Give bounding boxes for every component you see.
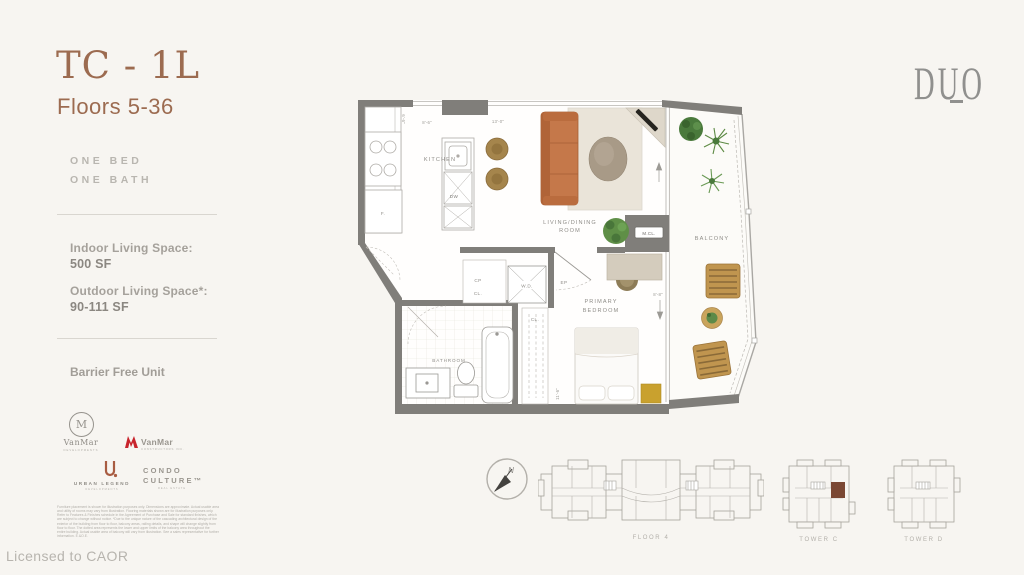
vanmar-constructors-logo-icon (125, 436, 138, 448)
bedroom-label-line1: PRIMARY (584, 299, 617, 305)
unit-floorplan: M.CL. F. DW (350, 92, 770, 432)
kitchen-label: KITCHEN (424, 157, 456, 163)
duo-logo-underline (950, 100, 963, 103)
keyplan-floor4 (538, 450, 764, 530)
unit-code-title: TC - 1L (56, 44, 200, 87)
licensed-to-caor: Licensed to CAOR (6, 548, 128, 564)
bedroom-label-line2: BEDROOM (583, 308, 620, 314)
media-closet-label: M.CL. (642, 231, 655, 236)
coat-pantry-label: CP (474, 278, 481, 283)
dim-kitchen-depth: 6'-6" (401, 114, 406, 124)
living-plant (603, 218, 629, 244)
dim-bedroom-width: 8'-8" (653, 292, 663, 297)
balcony-chair-2 (693, 341, 732, 380)
bath-count: ONE BATH (70, 171, 152, 190)
kitchen-island (442, 138, 474, 230)
balcony-table (702, 308, 723, 329)
bed-count: ONE BED (70, 152, 152, 171)
keyplan-tower-c (781, 458, 857, 530)
dishwasher-label: DW (450, 194, 459, 199)
vanmar-developments-logo-icon: M (69, 412, 94, 437)
bed-bath-block: ONE BED ONE BATH (70, 152, 152, 190)
ottoman (641, 384, 661, 403)
bedroom-closet (522, 308, 548, 404)
unit-floors: Floors 5-36 (57, 94, 174, 120)
keyplan-tower-d (886, 458, 962, 530)
indoor-space-value: 500 SF (70, 257, 112, 271)
floorplan-sheet: TC - 1L Floors 5-36 ONE BED ONE BATH Ind… (0, 0, 1024, 575)
keyplan-tower-c-label: TOWER C (781, 537, 857, 543)
bedroom-closet-label: CL. (531, 317, 539, 322)
dim-living-width: 13'-0" (492, 119, 504, 124)
north-compass: N (484, 456, 530, 502)
dim-kitchen-width: 8'-6" (422, 120, 432, 125)
vanmar-constructors-logo-name: VanMar (141, 437, 173, 447)
sofa (541, 112, 578, 205)
outdoor-space-label: Outdoor Living Space*: (70, 284, 208, 298)
living-label-line2: ROOM (559, 228, 581, 234)
living-label-line1: LIVING/DINING (543, 220, 597, 226)
urban-legend-logo-icon (100, 459, 120, 479)
divider-bottom (57, 338, 217, 339)
washer-dryer-label: W.D. (521, 284, 533, 289)
vanmar-monogram: M (76, 418, 87, 431)
legal-disclaimer: Furniture placement is shown for illustr… (57, 505, 219, 538)
indoor-space-label: Indoor Living Space: (70, 241, 193, 255)
vanmar-developments-logo-name: VanMar (55, 438, 107, 447)
bed (575, 328, 638, 404)
urban-legend-logo-tagline: DEVELOPMENTS (66, 488, 138, 491)
balcony-label: BALCONY (695, 236, 729, 242)
balcony-chair-1 (706, 264, 740, 298)
fridge-label: F. (381, 211, 385, 216)
keyplan-floor4-label: FLOOR 4 (538, 535, 764, 541)
vanmar-developments-logo-tagline: DEVELOPMENTS (55, 448, 107, 452)
condo-culture-logo-tagline: REAL ESTATE (158, 487, 186, 490)
urban-legend-logo-name: URBAN LEGEND (66, 481, 138, 486)
bathroom (402, 306, 513, 404)
compass-arrow (494, 475, 511, 492)
foyer-closet-label: CL. (474, 291, 482, 296)
highlighted-unit (831, 482, 845, 498)
condo-culture-logo-line2: CULTURE™ (143, 476, 203, 485)
outdoor-space-value: 90-111 SF (70, 300, 129, 314)
barrier-free-label: Barrier Free Unit (70, 365, 165, 379)
foyer-closet (463, 260, 506, 303)
coffee-table (589, 137, 627, 181)
bathroom-label: BATHROOM (432, 358, 465, 363)
electrical-panel-label: EP (561, 280, 568, 285)
keyplan-tower-d-label: TOWER D (886, 537, 962, 543)
divider-top (57, 214, 217, 215)
dim-bedroom-depth: 11'-6" (555, 388, 560, 400)
vanmar-constructors-logo-tagline: CONSTRUCTORS INC. (141, 447, 185, 451)
condo-culture-logo-line1: CONDO (143, 466, 182, 475)
